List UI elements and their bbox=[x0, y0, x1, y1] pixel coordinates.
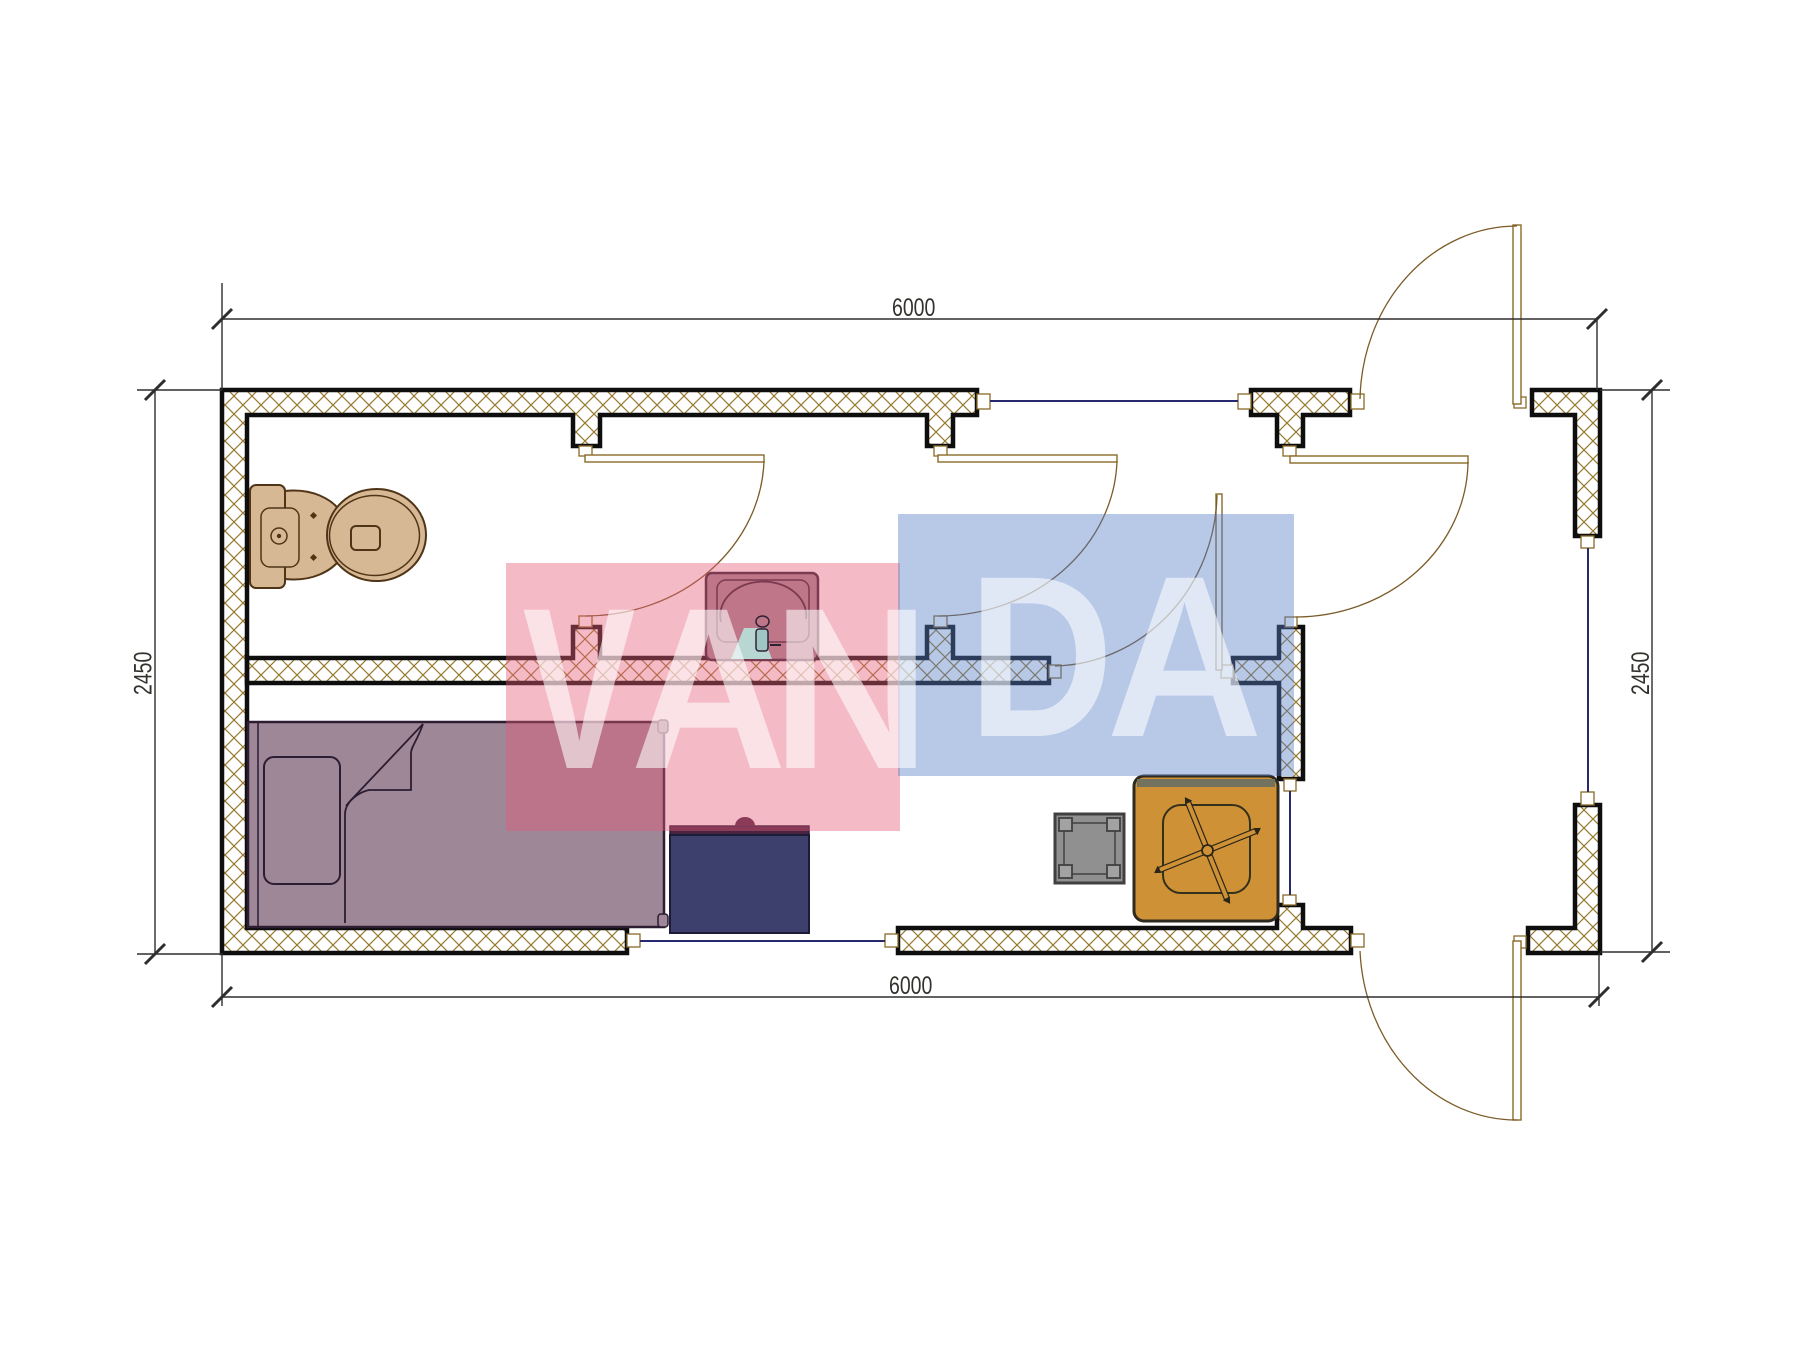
svg-text:D: D bbox=[968, 528, 1114, 785]
svg-text:6000: 6000 bbox=[892, 294, 935, 322]
svg-text:A: A bbox=[630, 561, 786, 817]
svg-text:2450: 2450 bbox=[129, 652, 157, 695]
svg-text:A: A bbox=[1106, 529, 1262, 785]
svg-text:6000: 6000 bbox=[889, 972, 932, 1000]
svg-text:2450: 2450 bbox=[1627, 652, 1655, 695]
svg-text:V: V bbox=[523, 560, 636, 817]
svg-text:N: N bbox=[772, 559, 931, 817]
